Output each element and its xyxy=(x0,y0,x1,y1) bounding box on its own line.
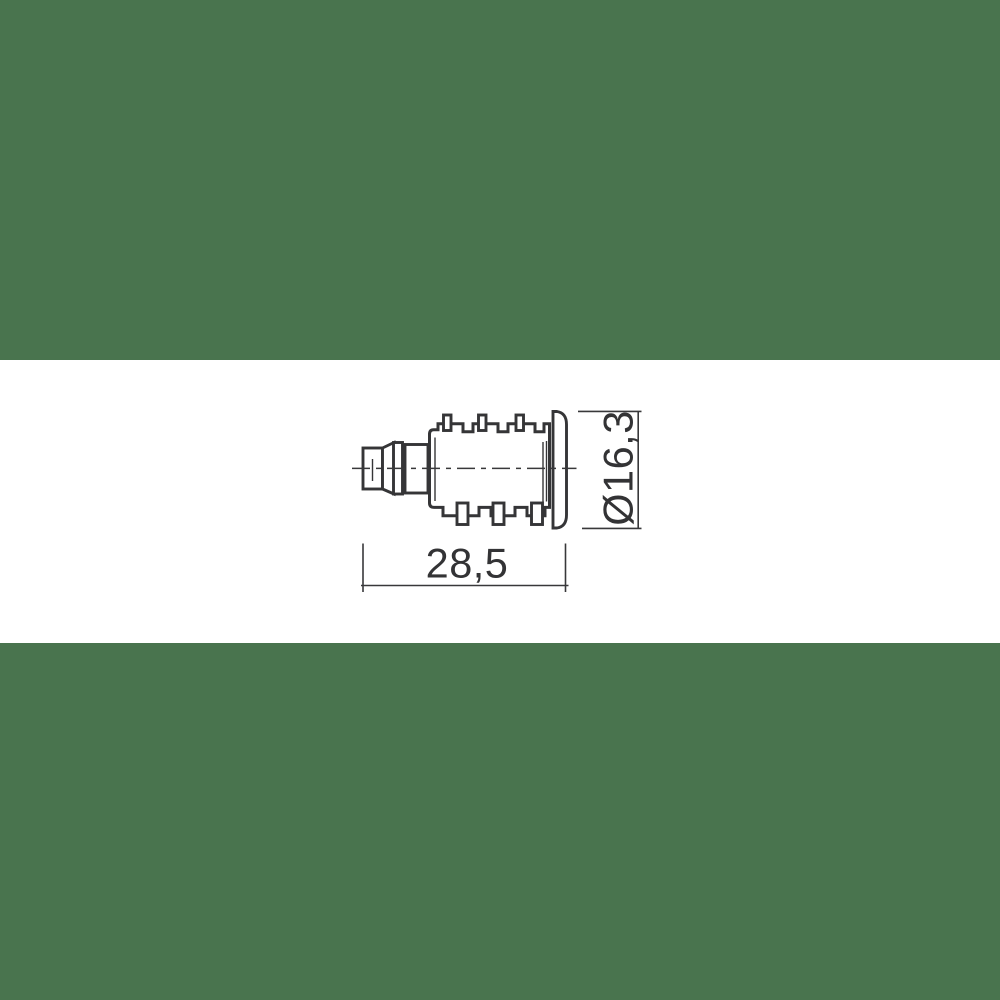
page: 28,5 Ø16,3 xyxy=(0,0,1000,1000)
pin-tab-top-1 xyxy=(444,415,452,431)
pin-tab-top-2 xyxy=(479,415,487,431)
length-dimension: 28,5 xyxy=(361,540,569,593)
cylinder-part xyxy=(363,412,567,529)
pin-tab-bottom-1 xyxy=(457,503,468,525)
length-dimension-label: 28,5 xyxy=(426,540,509,587)
diameter-dimension: Ø16,3 xyxy=(578,410,642,528)
pin-tab-bottom-2 xyxy=(493,503,504,525)
pin-tab-bottom-3 xyxy=(532,503,543,525)
lock-cylinder-technical-drawing: 28,5 Ø16,3 xyxy=(0,0,1000,1000)
pin-tab-top-3 xyxy=(516,415,524,431)
front-flange xyxy=(553,412,567,529)
diameter-dimension-label: Ø16,3 xyxy=(595,410,642,526)
